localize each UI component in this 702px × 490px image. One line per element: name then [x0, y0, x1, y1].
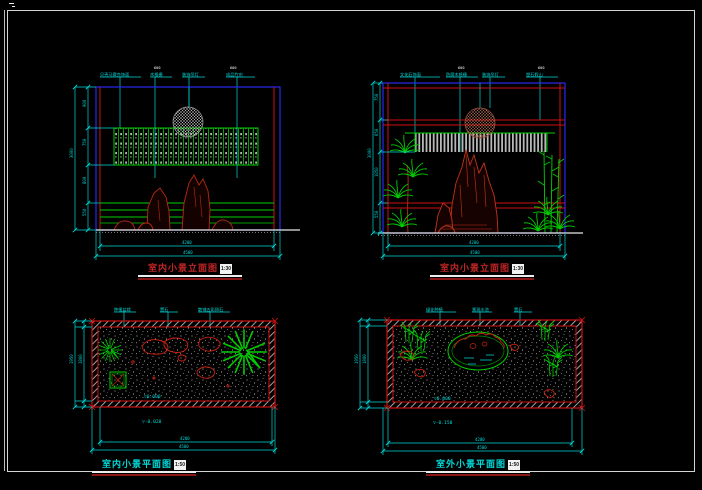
corner-mark — [12, 6, 15, 7]
title-plan-right: 室外小景平面图1:50 — [426, 459, 530, 476]
dim-value: 1800 — [78, 354, 83, 364]
callout-label: 景观水池 — [472, 306, 490, 313]
callout-label: 散铺五彩卵石 — [198, 306, 223, 313]
dim-value: 750 — [82, 138, 87, 146]
top-dim-mark: 600 — [154, 66, 161, 70]
level-mark: ▽0.000 — [434, 396, 451, 402]
rockery — [435, 150, 498, 233]
dim-total: 3000 — [367, 148, 372, 158]
dim-value: 550 — [374, 210, 379, 218]
hanging-ball-lamp — [173, 87, 203, 137]
paper-frame-edge — [4, 10, 5, 471]
level-mark: ▽-0.150 — [433, 420, 453, 426]
title-plan-left: 室内小景平面图1:50 — [92, 459, 196, 476]
dim-total: 1950 — [354, 354, 359, 364]
title-underline — [92, 471, 196, 473]
callout-label: 装饰吊灯 — [182, 71, 200, 78]
dim-value: 4500 — [477, 445, 487, 450]
title-elevation-right: 室内小景立面图1:30 — [430, 263, 534, 280]
title-underline — [92, 474, 196, 476]
title-underline — [426, 471, 530, 473]
top-dim-mark: 600 — [458, 66, 465, 70]
callout-label: 防腐木格栅 — [446, 71, 467, 78]
callout-label: 木格栅 — [150, 71, 163, 78]
callout-label: 塑石假山 — [526, 71, 543, 78]
corner-mark — [9, 3, 14, 4]
dimension-bottom: 4200 4500 — [90, 407, 277, 454]
plan-left-drawing: 种植盆栽 置石 散铺五彩卵石 ▽0.000 — [58, 300, 303, 458]
level-mark: ▽0.000 — [144, 394, 161, 400]
dim-value: 1800 — [362, 354, 367, 364]
dimension-bottom: 4200 4500 — [94, 230, 282, 260]
dimension-bottom: 4200 4500 — [381, 408, 584, 455]
hanging-ball-lamp — [465, 83, 495, 138]
top-dim-mark: 600 — [230, 66, 237, 70]
dim-total: 1950 — [69, 354, 74, 364]
elevation-right-drawing: 文化石饰面 防腐木格栅 装饰吊灯 塑石假山 600 600 — [350, 55, 605, 260]
dimension-left: 1800 1950 — [354, 318, 387, 410]
ground-line — [378, 233, 583, 236]
ground-line — [96, 230, 300, 233]
top-dim-mark: 600 — [538, 66, 545, 70]
scale-chip: 1:50 — [174, 460, 186, 470]
callout-label: 文化石饰面 — [400, 71, 421, 78]
title-underline — [430, 275, 534, 277]
callout-label: 成品竹帘 — [226, 71, 243, 78]
callout-label: 种植盆栽 — [114, 306, 132, 313]
callout-label: 贝壳马赛克饰面 — [100, 71, 129, 78]
dim-value: 550 — [82, 208, 87, 216]
dim-value: 4500 — [179, 444, 189, 449]
scale-chip: 1:50 — [508, 460, 520, 470]
dim-value: 4200 — [182, 240, 192, 245]
title-text: 室内小景平面图 — [102, 459, 172, 469]
level-mark: ▽-0.020 — [142, 419, 162, 425]
dimension-bottom: 4200 4500 — [381, 233, 567, 260]
dim-value: 4500 — [470, 250, 480, 255]
title-text: 室内小景立面图 — [148, 263, 218, 273]
dim-value: 4500 — [183, 250, 193, 255]
dim-value: 1050 — [374, 167, 379, 177]
dimension-left: 1800 1950 — [69, 319, 92, 409]
dim-value: 4200 — [469, 240, 479, 245]
scale-chip: 1:30 — [220, 264, 232, 274]
title-underline — [426, 474, 530, 476]
right-plant — [523, 151, 575, 233]
cad-viewport: 贝壳马赛克饰面 木格栅 装饰吊灯 成品竹帘 600 600 — [0, 0, 702, 490]
title-elevation-left: 室内小景立面图1:30 — [138, 263, 242, 280]
title-text: 室内小景立面图 — [440, 263, 510, 273]
title-underline — [430, 278, 534, 280]
title-underline — [138, 275, 242, 277]
elevation-left-drawing: 贝壳马赛克饰面 木格栅 装饰吊灯 成品竹帘 600 600 — [58, 55, 308, 260]
dim-total: 3000 — [69, 148, 74, 158]
callout-label: 绿化种植 — [426, 306, 443, 313]
dim-value: 650 — [374, 128, 379, 136]
pond — [448, 332, 508, 370]
dim-value: 800 — [82, 176, 87, 184]
dim-value: 750 — [374, 93, 379, 101]
scale-chip: 1:30 — [512, 264, 524, 274]
plan-right-drawing: 绿化种植 景观水池 置石 ▽0.000 — [348, 300, 598, 458]
title-text: 室外小景平面图 — [436, 459, 506, 469]
callout-label: 装饰吊灯 — [482, 71, 500, 78]
dim-value: 4200 — [180, 436, 190, 441]
dim-value: 4200 — [475, 437, 485, 442]
dim-value: 900 — [82, 99, 87, 107]
title-underline — [138, 278, 242, 280]
